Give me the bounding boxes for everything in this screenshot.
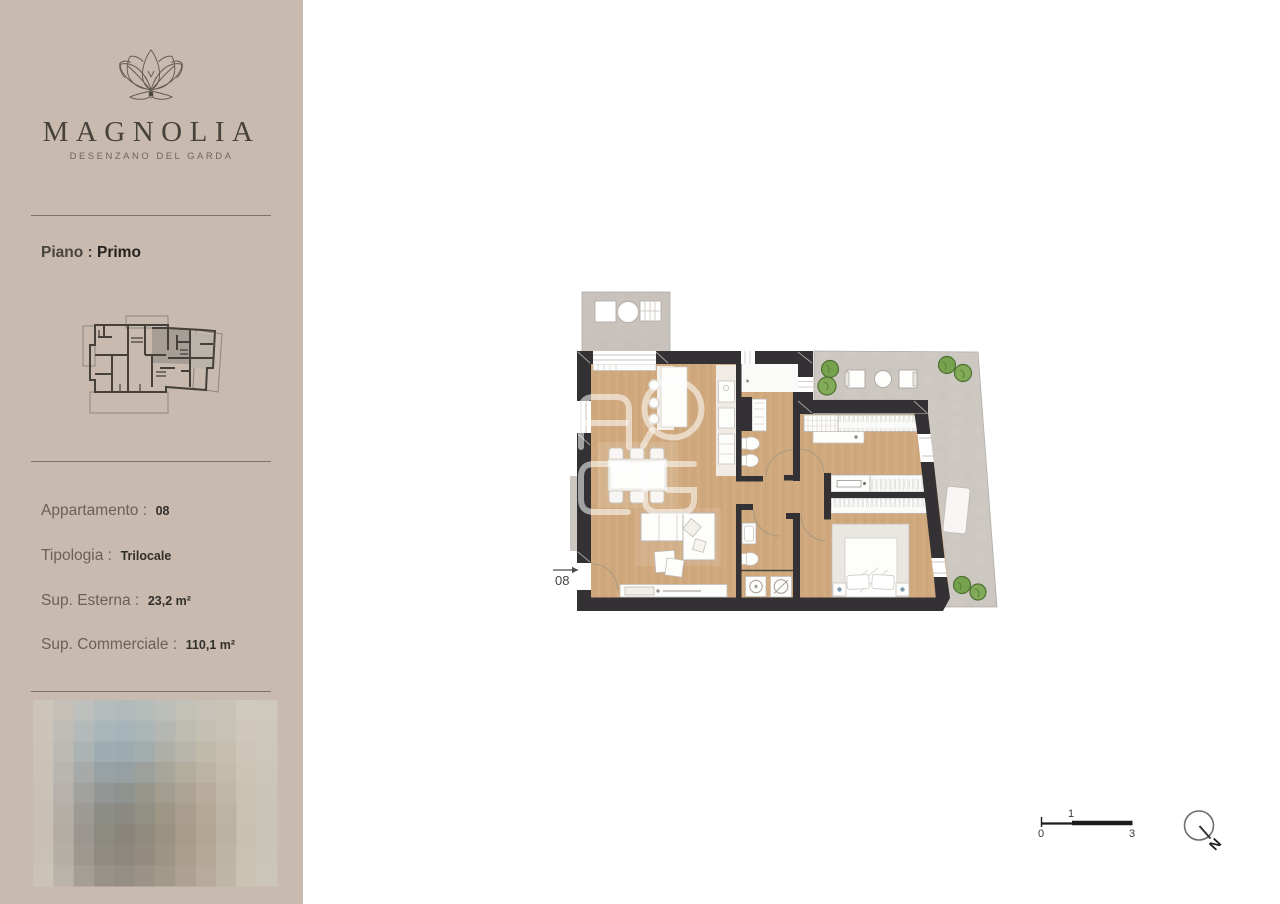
- svg-text:0: 0: [1038, 828, 1044, 840]
- svg-text:3: 3: [1129, 828, 1135, 840]
- svg-text:08: 08: [555, 573, 569, 588]
- svg-text:1: 1: [1068, 808, 1074, 820]
